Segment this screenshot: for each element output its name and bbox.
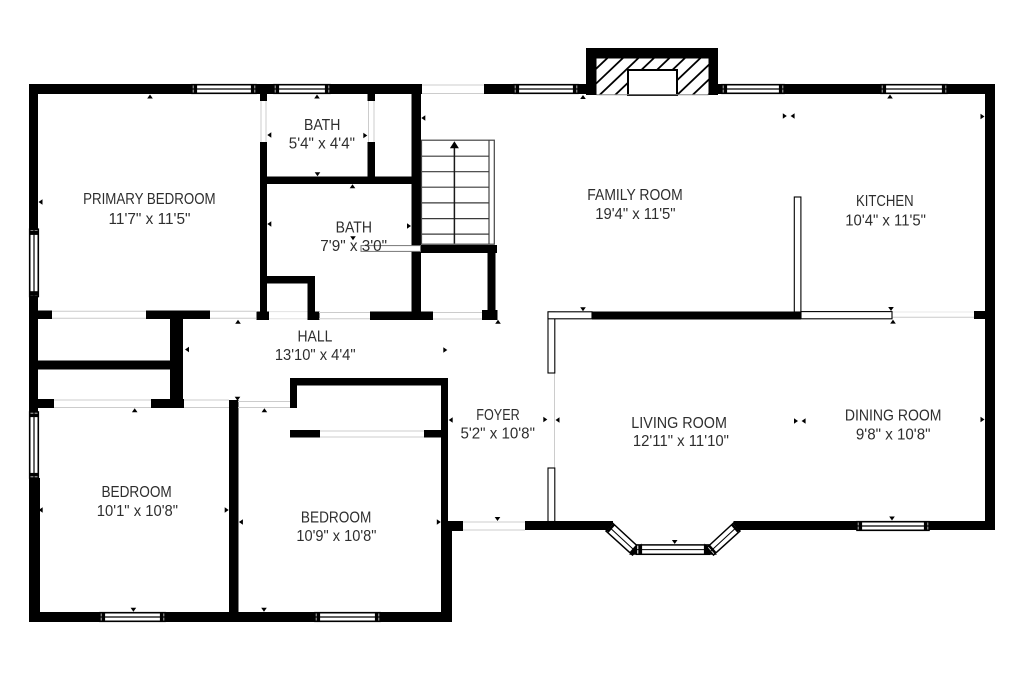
svg-text:FAMILY ROOM: FAMILY ROOM [587, 187, 682, 204]
svg-text:10'4" x 11'5": 10'4" x 11'5" [845, 212, 926, 229]
svg-text:12'11" x 11'10": 12'11" x 11'10" [633, 433, 729, 450]
svg-text:KITCHEN: KITCHEN [856, 193, 914, 210]
svg-text:10'1" x 10'8": 10'1" x 10'8" [97, 503, 178, 520]
svg-text:PRIMARY BEDROOM: PRIMARY BEDROOM [83, 191, 216, 208]
svg-text:BATH: BATH [304, 117, 340, 134]
svg-text:9'8" x 10'8": 9'8" x 10'8" [856, 427, 931, 444]
svg-text:HALL: HALL [298, 328, 333, 345]
svg-text:BATH: BATH [336, 220, 372, 237]
svg-text:FOYER: FOYER [476, 407, 519, 424]
svg-text:5'4" x 4'4": 5'4" x 4'4" [289, 136, 355, 153]
svg-text:19'4" x 11'5": 19'4" x 11'5" [595, 206, 675, 223]
svg-text:BEDROOM: BEDROOM [101, 484, 171, 501]
svg-text:BEDROOM: BEDROOM [301, 509, 371, 526]
svg-text:13'10" x 4'4": 13'10" x 4'4" [275, 347, 356, 364]
svg-text:LIVING ROOM: LIVING ROOM [631, 415, 727, 432]
svg-text:5'2" x 10'8": 5'2" x 10'8" [460, 426, 535, 443]
svg-text:11'7" x 11'5": 11'7" x 11'5" [109, 211, 191, 228]
svg-text:10'9" x 10'8": 10'9" x 10'8" [296, 528, 376, 545]
svg-text:DINING ROOM: DINING ROOM [845, 408, 942, 425]
svg-text:7'9" x 3'0": 7'9" x 3'0" [320, 238, 387, 255]
